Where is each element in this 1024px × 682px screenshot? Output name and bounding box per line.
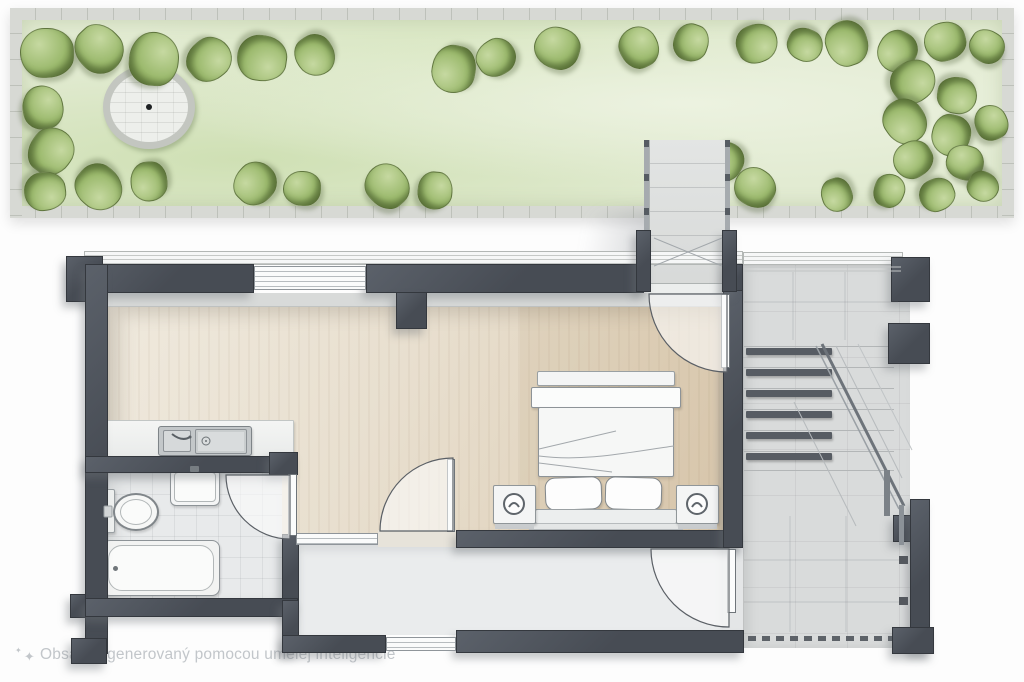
glass-partition-hallway (296, 533, 378, 545)
landing-dash (762, 636, 770, 641)
stair-tread-line (744, 388, 894, 389)
stair-tread-line (744, 409, 894, 410)
pillar-stair-top-right (891, 257, 930, 302)
stair-tread-edge (746, 432, 832, 439)
stair-tread-line (744, 451, 894, 452)
landing-dash (818, 636, 826, 641)
landing-dash (804, 636, 812, 641)
landing-dash (860, 636, 868, 641)
landing-dash (748, 636, 756, 641)
stair-tread-edge (746, 369, 832, 376)
landing-dash (846, 636, 854, 641)
wall-bedroom-bottom (456, 530, 743, 548)
landing-dash (776, 636, 784, 641)
stair-tread-line (744, 367, 894, 368)
landing-dash (832, 636, 840, 641)
stair-tread-edge (746, 390, 832, 397)
window-hallway (386, 637, 456, 651)
pillar-stair-mid-right (888, 323, 930, 364)
stair-tread-edge (746, 348, 832, 355)
floor-plan (0, 0, 1024, 682)
landing-dash (874, 636, 882, 641)
wall-counter-corner-block (269, 452, 298, 475)
wall-hallway-bottom-right (456, 630, 744, 653)
hallway-door-leaf (727, 549, 736, 613)
floorplan-illustration: ✦ ✦ Obsah vygenerovaný pomocou umelej in… (0, 0, 1024, 682)
wall-left-tab (70, 594, 86, 618)
stair-tread-line (744, 346, 894, 347)
wall-under-counter (85, 456, 296, 473)
entry-door-leaf (721, 294, 730, 368)
stair-tread-line (744, 470, 894, 471)
bathroom-door-leaf (288, 474, 297, 536)
pillar-interior-top (396, 292, 427, 329)
landing-dash (790, 636, 798, 641)
stair-tread-edge (746, 453, 832, 460)
wall-bathroom-bottom (85, 598, 298, 617)
wall-stair-foot (892, 627, 934, 654)
wall-hallway-bottom-left (282, 635, 386, 653)
stair-tread-line (744, 430, 894, 431)
stair-tread-edge (746, 411, 832, 418)
bridge-post-left (636, 230, 651, 292)
stair-detail-layer (0, 0, 1024, 682)
wall-top-mid-segment (366, 264, 644, 293)
interior-door-leaf (447, 459, 455, 532)
exterior-sill-stair (743, 252, 903, 265)
bridge-post-right (722, 230, 737, 292)
window-top (254, 266, 366, 290)
wall-left-foot (71, 638, 107, 664)
